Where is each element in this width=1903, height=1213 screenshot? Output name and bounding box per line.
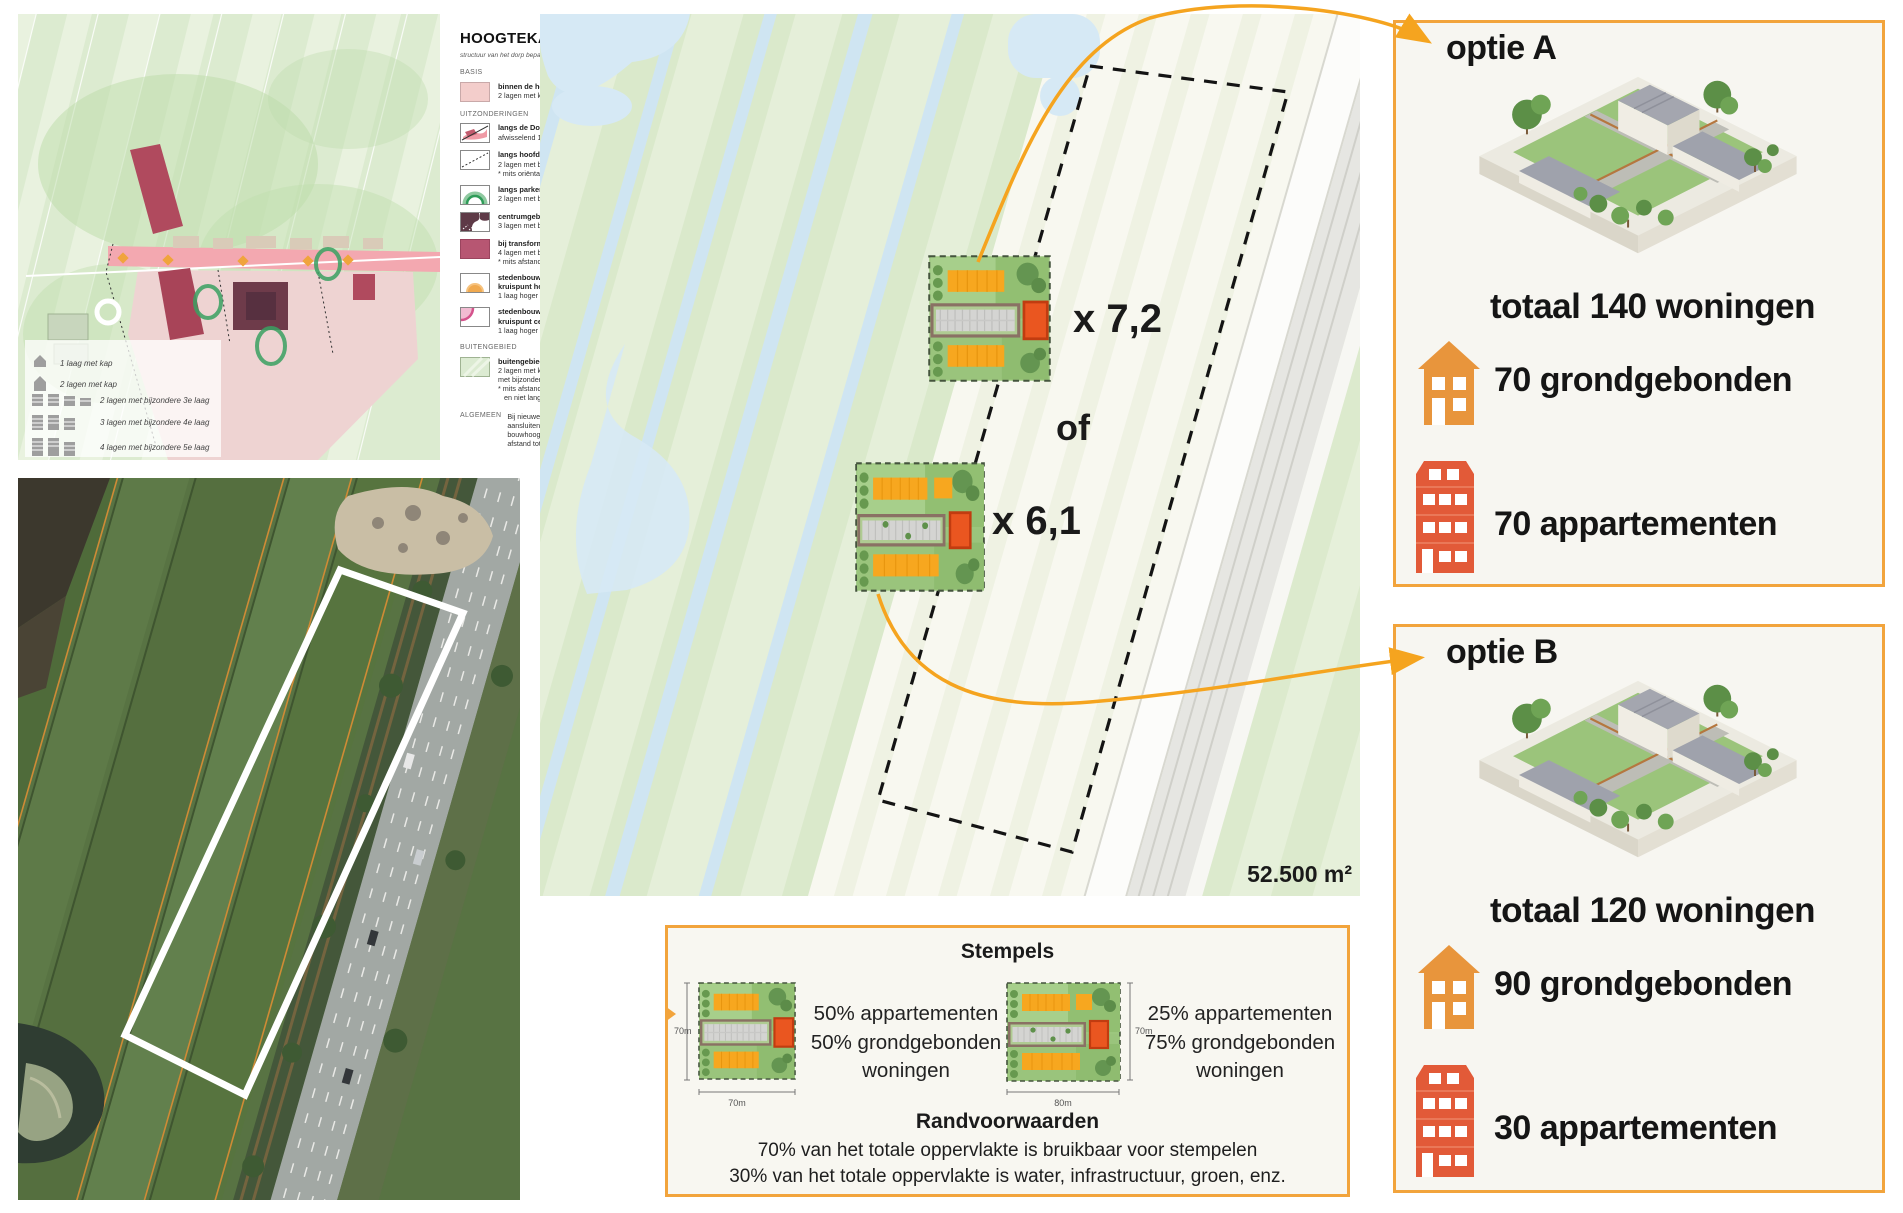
- swatch-accent-hoofdroutes: [460, 273, 490, 293]
- optie-a-grondgebonden: 70 grondgebonden: [1494, 361, 1792, 400]
- swatch-accent-centrumgebied: [460, 307, 490, 327]
- swatch-parken-groen: [460, 185, 490, 205]
- hoogtekaart-inset-legend: 1 laag met kap 2 lagen met kap 2 lagen m…: [25, 340, 221, 457]
- optie-b-total: totaal 120 woningen: [1490, 891, 1815, 931]
- apartment-icon: [1416, 461, 1474, 573]
- svg-text:3 lagen met bijzondere 4e laag: 3 lagen met bijzondere 4e laag: [100, 418, 210, 427]
- hoogtekaart-map: 1 laag met kap 2 lagen met kap 2 lagen m…: [18, 14, 440, 460]
- of-label: of: [1056, 407, 1091, 448]
- swatch-binnen-kern: [460, 82, 490, 102]
- optie-b-panel: optie B totaal 120 woningen 90 grondgebo…: [1393, 624, 1885, 1193]
- svg-text:70m: 70m: [674, 1026, 692, 1036]
- svg-text:4 lagen met bijzondere 5e laag: 4 lagen met bijzondere 5e laag: [100, 443, 210, 452]
- optie-b-grondgebonden: 90 grondgebonden: [1494, 965, 1792, 1004]
- swatch-hoofdroutes: [460, 150, 490, 170]
- optie-a-total: totaal 140 woningen: [1490, 287, 1815, 327]
- swatch-buitengebied: [460, 357, 490, 377]
- randvoorwaarden-line: 70% van het totale oppervlakte is bruikb…: [668, 1140, 1347, 1162]
- optie-b-appartementen: 30 appartementen: [1494, 1109, 1777, 1148]
- stempels-title: Stempels: [668, 940, 1347, 964]
- svg-text:80m: 80m: [1054, 1098, 1072, 1108]
- site-map: x 7,2 of x 6,1 52.500 m²: [540, 14, 1360, 896]
- stamp-figure-80m: 70m 80m: [1004, 980, 1152, 1112]
- swatch-centrumgebied: [460, 212, 490, 232]
- optie-b-render: [1468, 663, 1808, 891]
- optie-a-render: [1468, 59, 1808, 287]
- multiplier-a-label: x 7,2: [1073, 297, 1162, 341]
- house-icon: [1418, 341, 1480, 425]
- area-label: 52.500 m²: [1247, 861, 1352, 887]
- stamp-80m-on-map: [856, 463, 984, 590]
- stempels-panel: Stempels 70m 70m 50% appartementen 50% g…: [665, 925, 1350, 1197]
- apartment-icon: [1416, 1065, 1474, 1177]
- house-icon: [1418, 945, 1480, 1029]
- stamp-a-percentages: 50% appartementen 50% grondgebonden woni…: [806, 1000, 1006, 1086]
- randvoorwaarden-line: 30% van het totale oppervlakte is water,…: [668, 1166, 1347, 1188]
- swatch-transformatie: [460, 239, 490, 259]
- svg-text:1 laag met kap: 1 laag met kap: [60, 359, 113, 368]
- swatch-dorpsweg: [460, 123, 490, 143]
- stamp-70m-on-map: [929, 256, 1050, 380]
- optie-a-appartementen: 70 appartementen: [1494, 505, 1777, 544]
- optie-a-panel: optie A totaal 140 woningen 70 grondgebo…: [1393, 20, 1885, 587]
- svg-text:2 lagen met bijzondere 3e laag: 2 lagen met bijzondere 3e laag: [99, 396, 210, 405]
- svg-text:70m: 70m: [728, 1098, 746, 1108]
- stamp-b-percentages: 25% appartementen 75% grondgebonden woni…: [1140, 1000, 1340, 1086]
- multiplier-b-label: x 6,1: [992, 499, 1081, 543]
- stamp-figure-70m: 70m 70m: [674, 980, 810, 1112]
- aerial-photo: [18, 478, 520, 1200]
- svg-text:2 lagen met kap: 2 lagen met kap: [59, 380, 117, 389]
- randvoorwaarden-title: Randvoorwaarden: [668, 1110, 1347, 1134]
